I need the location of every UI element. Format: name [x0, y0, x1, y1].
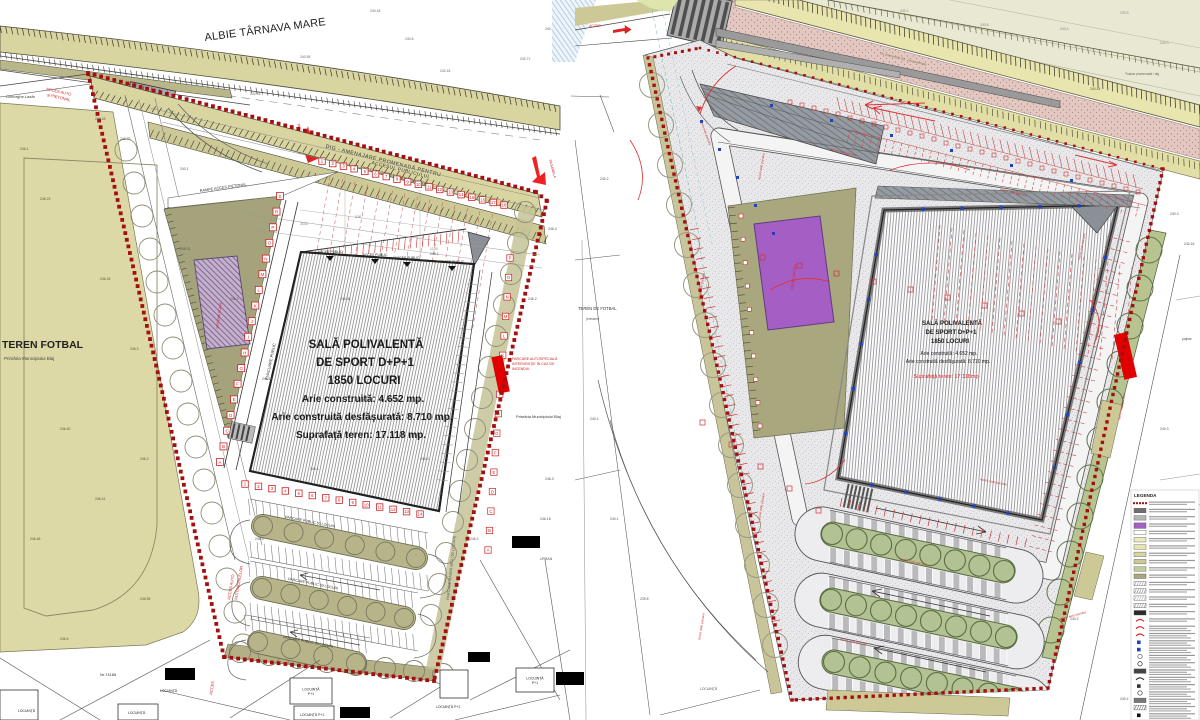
svg-text:H: H [243, 350, 246, 355]
svg-text:ACCES PUBLIC: ACCES PUBLIC [395, 256, 420, 260]
svg-text:G: G [495, 431, 498, 436]
svg-text:14: 14 [459, 192, 464, 197]
svg-text:11: 11 [427, 184, 432, 189]
svg-text:240.5: 240.5 [980, 23, 989, 27]
svg-text:246.2: 246.2 [470, 537, 479, 541]
svg-text:K: K [254, 303, 257, 308]
svg-text:240.3: 240.3 [1170, 212, 1179, 216]
svg-text:246.1: 246.1 [430, 252, 439, 256]
svg-text:246.4: 246.4 [310, 467, 319, 471]
svg-text:LOCUINŢĂ: LOCUINŢĂ [18, 709, 36, 713]
svg-text:LOCUINŢĂ: LOCUINŢĂ [302, 688, 320, 692]
svg-text:10: 10 [416, 182, 421, 187]
svg-text:13: 13 [404, 509, 409, 514]
svg-text:Primăria Municipiului Blaj: Primăria Municipiului Blaj [516, 414, 561, 419]
svg-text:246.18: 246.18 [100, 277, 110, 281]
svg-text:Primăria Municipiului Blaj: Primăria Municipiului Blaj [4, 356, 54, 361]
svg-text:P+1: P+1 [532, 681, 538, 685]
svg-text:PARCARE AUTOSPECIALĂ: PARCARE AUTOSPECIALĂ [512, 357, 558, 361]
svg-text:A: A [487, 548, 490, 553]
svg-text:A: A [218, 460, 221, 465]
svg-text:246.2: 246.2 [230, 297, 239, 301]
svg-text:ACCES PUBLIC: ACCES PUBLIC [440, 260, 465, 264]
svg-text:240.44: 240.44 [1090, 87, 1100, 91]
svg-text:Gheorghe Lazăr: Gheorghe Lazăr [6, 94, 36, 99]
svg-text:P+1: P+1 [308, 692, 314, 696]
svg-text:10: 10 [364, 502, 369, 507]
svg-text:240.2: 240.2 [1070, 617, 1079, 621]
svg-text:E: E [493, 470, 496, 475]
svg-text:INCENDIU: INCENDIU [512, 367, 530, 371]
svg-text:12: 12 [437, 187, 442, 192]
svg-text:246.36: 246.36 [340, 297, 350, 301]
svg-text:12,00: 12,00 [430, 247, 438, 251]
svg-text:14: 14 [418, 512, 423, 517]
svg-text:TEREN DE FOTBAL: TEREN DE FOTBAL [578, 306, 617, 311]
svg-text:246.4: 246.4 [548, 227, 557, 231]
svg-text:246.18: 246.18 [540, 517, 551, 521]
svg-text:240.4: 240.4 [1120, 697, 1129, 701]
svg-text:240.71: 240.71 [520, 57, 530, 61]
svg-text:(existent): (existent) [586, 317, 599, 321]
svg-text:LOCUINŢĂ: LOCUINŢĂ [128, 711, 146, 715]
svg-text:246.2: 246.2 [528, 297, 537, 301]
svg-text:246.3: 246.3 [420, 457, 429, 461]
svg-text:E: E [233, 397, 236, 402]
svg-text:TEREN FOTBAL: TEREN FOTBAL [2, 339, 84, 351]
svg-text:LOCUINŢĂ: LOCUINŢĂ [526, 677, 544, 681]
svg-text:240.2: 240.2 [900, 9, 909, 13]
svg-text:246.40: 246.40 [60, 427, 70, 431]
svg-text:DE SPORT D+P+1: DE SPORT D+P+1 [925, 330, 977, 336]
svg-text:240.75: 240.75 [120, 137, 130, 141]
svg-text:246.48: 246.48 [30, 537, 40, 541]
svg-text:240.18: 240.18 [440, 69, 450, 73]
svg-text:239.9: 239.9 [1120, 11, 1129, 15]
svg-text:18: 18 [502, 203, 507, 208]
svg-text:240.18: 240.18 [1184, 242, 1194, 246]
svg-text:Trotuar promenada / dig: Trotuar promenada / dig [1125, 72, 1159, 76]
svg-text:240.1: 240.1 [180, 167, 189, 171]
svg-text:INTERVENŢIE ÎN CAZ DE: INTERVENŢIE ÎN CAZ DE [512, 362, 555, 366]
svg-text:Arie construită desfăşurată: 8: Arie construită desfăşurată: 8.710 mp. [906, 359, 991, 365]
svg-text:ACCES PUBLIC: ACCES PUBLIC [363, 253, 388, 257]
svg-text:I: I [248, 335, 249, 340]
svg-text:LOCUINŢĂ P+1: LOCUINŢĂ P+1 [436, 705, 460, 709]
svg-text:LOCUINŢĂ: LOCUINŢĂ [700, 687, 718, 691]
svg-text:240.2: 240.2 [600, 177, 609, 181]
svg-text:Suprafaţă teren: 17.118mp: Suprafaţă teren: 17.118mp [913, 374, 978, 380]
svg-text:DE SPORT D+P+1: DE SPORT D+P+1 [316, 357, 414, 369]
svg-text:11: 11 [377, 505, 382, 510]
svg-text:P: P [271, 225, 274, 230]
svg-text:16: 16 [480, 197, 485, 202]
svg-text:O: O [268, 241, 272, 246]
svg-text:G: G [239, 366, 243, 371]
svg-text:Arie construită desfăşurată: 8: Arie construită desfăşurată: 8.710 mp. [271, 412, 452, 423]
svg-text:B: B [488, 528, 491, 533]
svg-text:LEGENDA: LEGENDA [1134, 493, 1157, 498]
svg-text:240.6: 240.6 [405, 37, 414, 41]
svg-text:246.3: 246.3 [545, 477, 554, 481]
svg-text:ACCES PUBLIC: ACCES PUBLIC [318, 250, 343, 254]
svg-text:C: C [489, 509, 492, 514]
svg-text:240.18: 240.18 [95, 117, 105, 121]
svg-text:239.8: 239.8 [640, 597, 649, 601]
svg-text:Suprafaţă teren: 17.118 mp.: Suprafaţă teren: 17.118 mp. [296, 430, 426, 441]
svg-text:M: M [261, 272, 265, 277]
svg-text:246.1: 246.1 [20, 147, 29, 151]
svg-text:M: M [504, 314, 508, 319]
svg-text:Arie construită: 4.652 mp.: Arie construită: 4.652 mp. [921, 351, 978, 357]
svg-text:12: 12 [391, 507, 396, 512]
svg-text:246.6: 246.6 [60, 637, 69, 641]
svg-text:LOCUINŢĂ: LOCUINŢĂ [160, 689, 178, 693]
svg-text:246.55: 246.55 [140, 597, 150, 601]
svg-text:240.4: 240.4 [1060, 27, 1069, 31]
svg-text:240.55: 240.55 [300, 55, 310, 59]
svg-text:1850 LOCURI: 1850 LOCURI [931, 339, 969, 345]
svg-text:246.2: 246.2 [140, 457, 149, 461]
svg-text:N: N [264, 256, 267, 261]
svg-text:246.31: 246.31 [180, 247, 190, 251]
svg-text:240.3: 240.3 [1160, 427, 1169, 431]
svg-text:13: 13 [448, 190, 453, 195]
svg-text:F: F [494, 450, 497, 455]
svg-text:F: F [236, 382, 239, 387]
svg-text:246.3: 246.3 [130, 347, 139, 351]
svg-text:B: B [222, 444, 225, 449]
svg-text:N: N [506, 295, 509, 300]
svg-text:SALĂ POLIVALENTĂ: SALĂ POLIVALENTĂ [922, 320, 983, 327]
svg-text:ACCES: ACCES [589, 24, 601, 28]
svg-text:SALĂ POLIVALENTĂ: SALĂ POLIVALENTĂ [309, 338, 424, 351]
svg-text:Nr.74185: Nr.74185 [100, 672, 117, 677]
svg-text:15: 15 [470, 195, 475, 200]
svg-text:246.23: 246.23 [40, 197, 50, 201]
svg-text:URBAN: URBAN [540, 557, 553, 561]
svg-text:LOCUINŢĂ P+1: LOCUINŢĂ P+1 [300, 713, 324, 717]
svg-text:240.3: 240.3 [1160, 41, 1169, 45]
svg-text:pajiste: pajiste [1182, 337, 1192, 341]
svg-text:Arie construită: 4.652 mp.: Arie construită: 4.652 mp. [302, 394, 424, 405]
svg-text:8,50: 8,50 [355, 215, 361, 219]
svg-text:1850 LOCURI: 1850 LOCURI [328, 375, 401, 387]
svg-text:S: S [278, 194, 281, 199]
svg-text:240.1: 240.1 [610, 517, 619, 521]
svg-text:J: J [251, 319, 253, 324]
svg-text:240.18: 240.18 [370, 9, 380, 13]
svg-text:D: D [491, 489, 494, 494]
svg-text:246.41: 246.41 [95, 497, 105, 501]
svg-text:246.18: 246.18 [262, 377, 272, 381]
svg-text:246.5: 246.5 [255, 537, 264, 541]
svg-text:24,50: 24,50 [300, 222, 308, 226]
svg-text:240.4: 240.4 [590, 417, 599, 421]
svg-text:17: 17 [491, 200, 496, 205]
svg-text:P: P [509, 256, 512, 261]
